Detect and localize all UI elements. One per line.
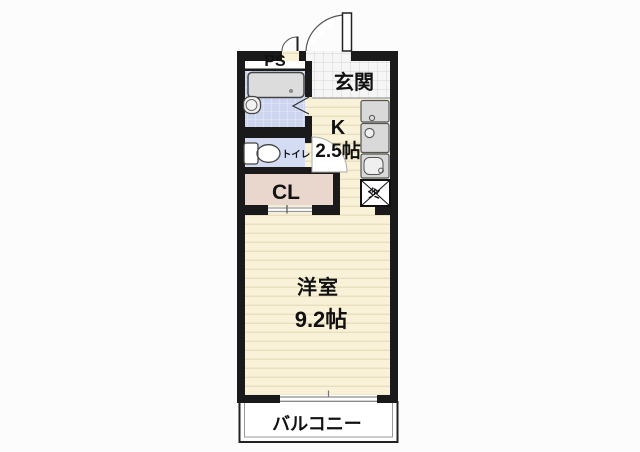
living-room-size-label: 9.2帖 <box>295 307 348 332</box>
fridge-label: 冷 <box>367 187 382 199</box>
kitchen-counter <box>361 101 389 179</box>
floorplan-image: PS 玄関 トイレ CL K 2.5帖 冷 洋室 9.2帖 バルコニー <box>0 0 640 452</box>
ps-label: PS <box>264 53 286 70</box>
washbasin <box>244 97 261 114</box>
bathtub <box>248 73 304 98</box>
toilet-label: トイレ <box>282 150 311 161</box>
kitchen-size-label: 2.5帖 <box>315 139 360 162</box>
kitchen-letter-label: K <box>331 117 346 139</box>
living-room-label: 洋室 <box>297 275 339 299</box>
balcony-label: バルコニー <box>272 414 362 434</box>
entrance-opening <box>306 51 351 61</box>
genkan-label: 玄関 <box>334 70 374 94</box>
toilet-fixture <box>244 143 280 164</box>
closet-label: CL <box>272 181 300 204</box>
floorplan-svg: PS 玄関 トイレ CL K 2.5帖 冷 洋室 9.2帖 バルコニー <box>0 0 640 452</box>
